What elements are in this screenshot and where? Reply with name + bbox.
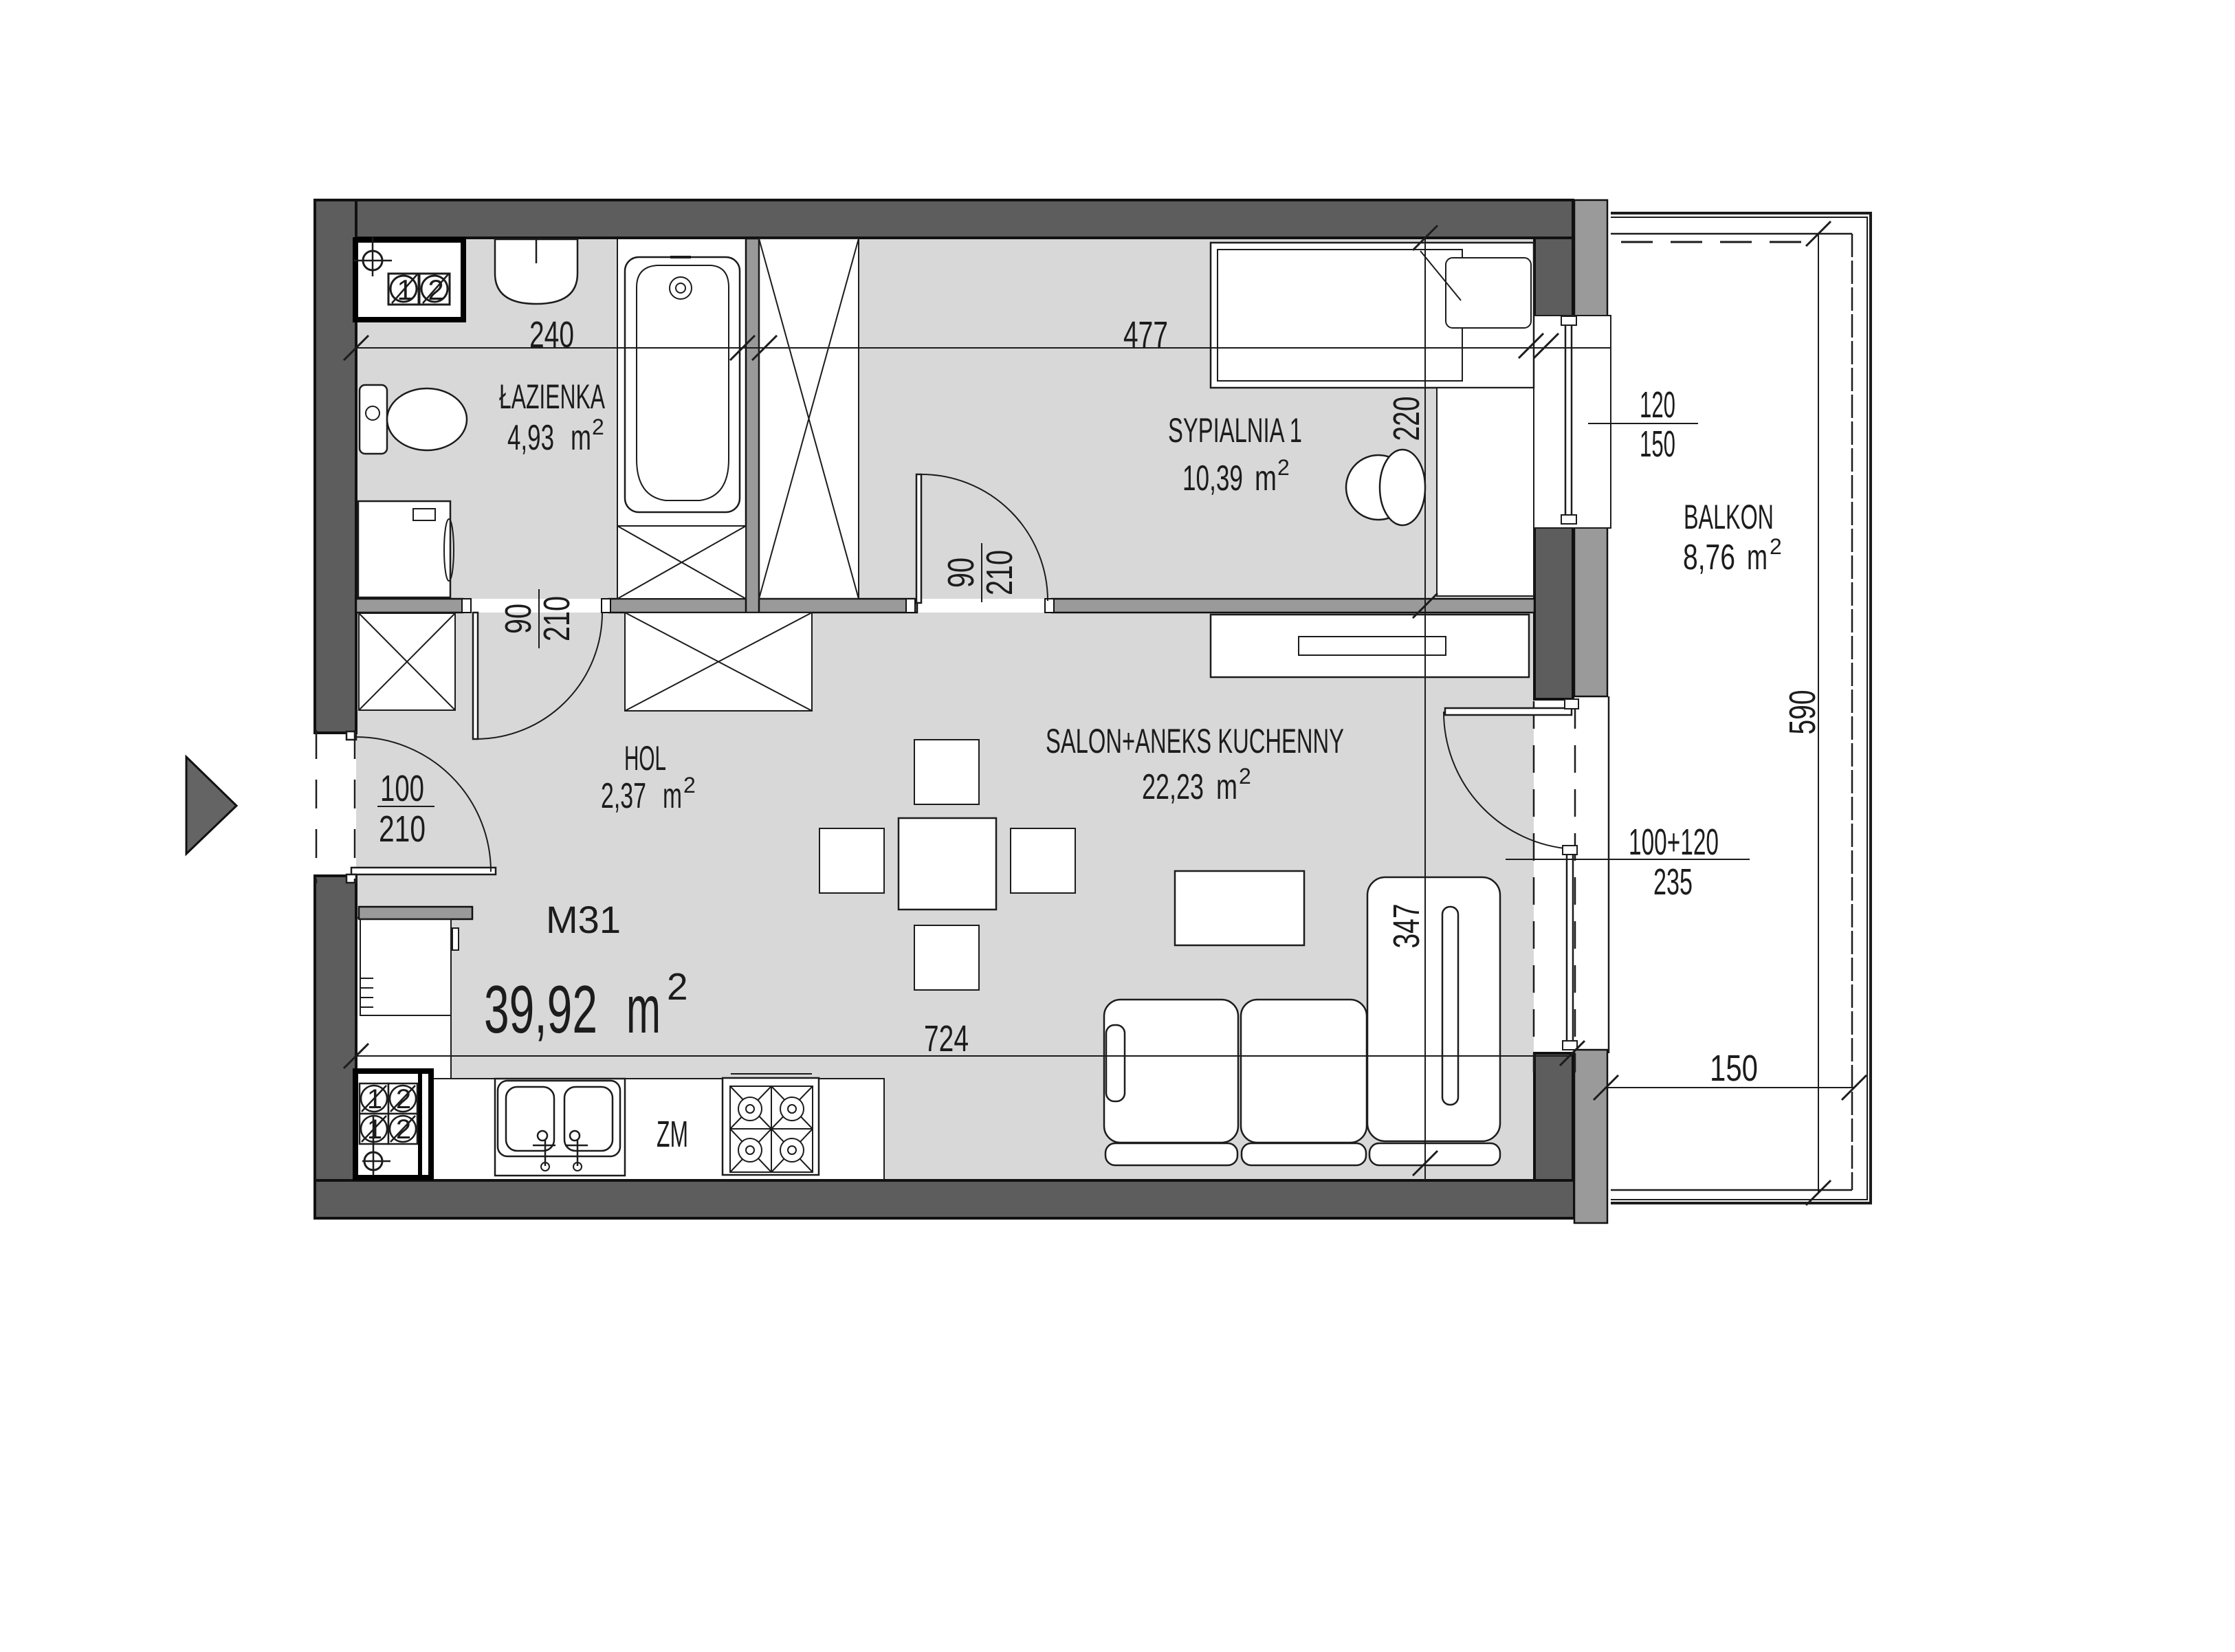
- svg-text:2: 2: [428, 274, 443, 306]
- svg-text:BALKON: BALKON: [1684, 498, 1774, 536]
- svg-text:90: 90: [940, 558, 982, 588]
- svg-text:8,76m2: 8,76m2: [1683, 534, 1782, 577]
- svg-text:347: 347: [1386, 904, 1427, 949]
- svg-text:220: 220: [1386, 397, 1427, 441]
- svg-text:590: 590: [1782, 690, 1823, 735]
- svg-text:210: 210: [536, 596, 577, 641]
- svg-text:ŁAZIENKA: ŁAZIENKA: [499, 377, 605, 416]
- svg-text:M31: M31: [546, 898, 621, 941]
- svg-text:724: 724: [924, 1018, 969, 1059]
- svg-text:1: 1: [397, 274, 412, 306]
- svg-text:150: 150: [1640, 423, 1675, 465]
- svg-text:120: 120: [1640, 384, 1675, 426]
- svg-text:10,39m2: 10,39m2: [1182, 455, 1290, 498]
- svg-text:ZM: ZM: [657, 1114, 688, 1155]
- svg-text:477: 477: [1123, 314, 1168, 355]
- svg-text:SALON+ANEKS KUCHENNY: SALON+ANEKS KUCHENNY: [1046, 722, 1344, 760]
- svg-text:SYPIALNIA 1: SYPIALNIA 1: [1168, 411, 1302, 450]
- svg-text:210: 210: [979, 550, 1020, 595]
- svg-text:22,23m2: 22,23m2: [1142, 764, 1251, 807]
- svg-text:1: 1: [367, 1084, 382, 1114]
- svg-text:39,92m2: 39,92m2: [484, 965, 688, 1047]
- svg-text:100: 100: [380, 768, 424, 809]
- svg-text:90: 90: [498, 604, 539, 634]
- svg-text:210: 210: [379, 808, 426, 850]
- svg-text:235: 235: [1653, 861, 1693, 903]
- svg-text:1: 1: [367, 1114, 382, 1145]
- svg-text:240: 240: [529, 314, 574, 355]
- svg-text:HOL: HOL: [624, 739, 666, 778]
- svg-text:2: 2: [396, 1084, 411, 1114]
- svg-text:100+120: 100+120: [1629, 822, 1719, 863]
- svg-text:2: 2: [396, 1114, 411, 1145]
- svg-text:150: 150: [1710, 1048, 1758, 1089]
